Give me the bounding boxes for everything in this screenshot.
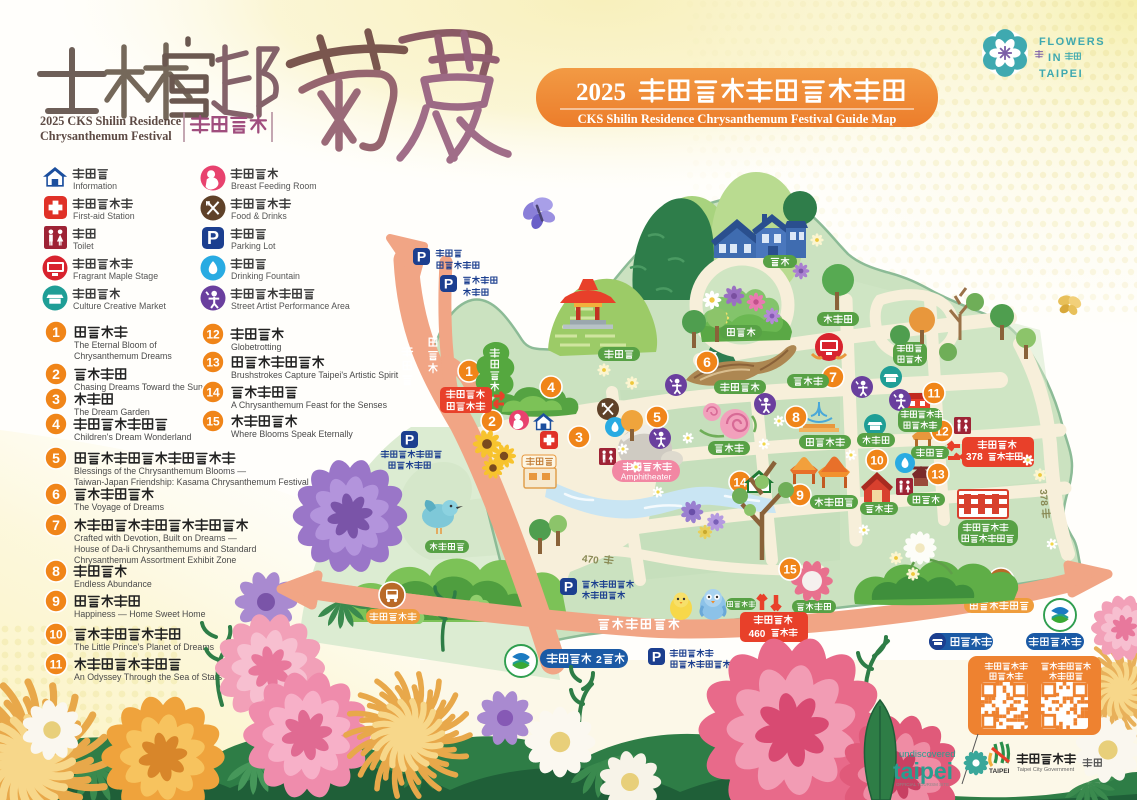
svg-text:4: 4 xyxy=(547,379,555,395)
svg-text:7: 7 xyxy=(829,369,837,385)
svg-text:The Dream Garden: The Dream Garden xyxy=(74,407,150,417)
svg-text:378: 378 xyxy=(1037,489,1049,507)
svg-text:TAIPEI: TAIPEI xyxy=(989,768,1010,775)
svg-text:Drinking Fountain: Drinking Fountain xyxy=(231,271,300,281)
svg-text:13: 13 xyxy=(206,355,220,369)
svg-text:9: 9 xyxy=(52,593,60,609)
svg-text:Crafted with Devotion, Built o: Crafted with Devotion, Built on Dreams — xyxy=(74,533,237,543)
svg-text:Taiwan-Japan Friendship: Kasam: Taiwan-Japan Friendship: Kasama Chrysant… xyxy=(74,477,309,487)
svg-text:2: 2 xyxy=(596,654,602,666)
svg-text:A Chrysanthemum Feast for the: A Chrysanthemum Feast for the Senses xyxy=(231,400,388,410)
svg-text:Taipei City Government: Taipei City Government xyxy=(1017,767,1075,773)
svg-text:The Voyage of Dreams: The Voyage of Dreams xyxy=(74,502,165,512)
svg-text:Chrysanthemum Dreams: Chrysanthemum Dreams xyxy=(74,351,172,361)
svg-text:2: 2 xyxy=(488,413,496,429)
svg-text:IN: IN xyxy=(1048,52,1062,64)
svg-text:8: 8 xyxy=(52,563,60,579)
svg-text:10: 10 xyxy=(49,627,63,641)
svg-text:1: 1 xyxy=(465,363,473,379)
svg-text:4: 4 xyxy=(52,416,60,432)
svg-text:P: P xyxy=(564,578,573,594)
svg-text:12: 12 xyxy=(206,327,220,341)
svg-text:Happiness — Home Sweet Home: Happiness — Home Sweet Home xyxy=(74,609,206,619)
svg-text:5: 5 xyxy=(653,409,661,425)
svg-text:P: P xyxy=(444,275,453,291)
svg-text:Where Blooms Speak Eternally: Where Blooms Speak Eternally xyxy=(231,429,353,439)
svg-text:P: P xyxy=(207,228,219,248)
svg-text:Culture Creative Market: Culture Creative Market xyxy=(73,301,166,311)
svg-text:Parking Lot: Parking Lot xyxy=(231,241,276,251)
svg-text:Fragrant Maple Stage: Fragrant Maple Stage xyxy=(73,271,158,281)
svg-text:Endless Abundance: Endless Abundance xyxy=(74,579,152,589)
svg-text:Chrysanthemum Assortment Exhib: Chrysanthemum Assortment Exhibit Zone xyxy=(74,555,236,565)
svg-text:Children's Dream Wonderland: Children's Dream Wonderland xyxy=(74,432,192,442)
svg-text:Food & Drinks: Food & Drinks xyxy=(231,211,287,221)
svg-text:The Little Prince's Planet of: The Little Prince's Planet of Dreams xyxy=(74,642,215,652)
svg-text:7: 7 xyxy=(52,517,60,533)
svg-text:6: 6 xyxy=(52,486,60,502)
svg-text:Brushstrokes Capture Taipei's: Brushstrokes Capture Taipei's Artistic S… xyxy=(231,370,399,380)
svg-text:3: 3 xyxy=(52,391,60,407)
svg-text:Toilet: Toilet xyxy=(73,241,94,251)
svg-text:Amphitheater: Amphitheater xyxy=(621,472,672,482)
svg-text:Breast Feeding Room: Breast Feeding Room xyxy=(231,181,317,191)
svg-text:TAIPEI: TAIPEI xyxy=(1039,68,1083,80)
svg-text:Blessings of the Chrysanthemum: Blessings of the Chrysanthemum Blooms — xyxy=(74,466,246,476)
svg-text:6: 6 xyxy=(703,354,711,370)
svg-text:CKS Shilin Residence Chrysanth: CKS Shilin Residence Chrysanthemum Festi… xyxy=(578,112,897,126)
svg-text:P: P xyxy=(405,431,414,447)
svg-text:An Odyssey Through the Sea of: An Odyssey Through the Sea of Stars xyxy=(74,672,223,682)
svg-text:2025 CKS Shilin Residence: 2025 CKS Shilin Residence xyxy=(40,114,182,128)
svg-text:OFFICIAL TOURISM SITE: OFFICIAL TOURISM SITE xyxy=(896,782,949,787)
svg-text:P: P xyxy=(652,648,661,664)
svg-text:Information: Information xyxy=(73,181,117,191)
svg-text:3: 3 xyxy=(575,429,583,445)
svg-text:Chasing Dreams Toward the Sun: Chasing Dreams Toward the Sun xyxy=(74,382,203,392)
svg-text:First-aid Station: First-aid Station xyxy=(73,211,135,221)
svg-text:14: 14 xyxy=(206,385,220,399)
svg-text:15: 15 xyxy=(206,414,220,428)
svg-text:13: 13 xyxy=(931,467,945,481)
svg-text:11: 11 xyxy=(928,386,941,400)
svg-text:The Eternal Bloom of: The Eternal Bloom of xyxy=(74,340,157,350)
svg-text:378: 378 xyxy=(966,452,983,463)
svg-text:1: 1 xyxy=(52,324,60,340)
svg-text:House of Da-li Chrysanthemums: House of Da-li Chrysanthemums and Standa… xyxy=(74,544,256,554)
svg-text:460: 460 xyxy=(749,629,766,640)
svg-text:FLOWERS: FLOWERS xyxy=(1039,36,1105,48)
svg-text:2025: 2025 xyxy=(576,79,626,106)
svg-text:taipei: taipei xyxy=(893,758,953,784)
svg-text:10: 10 xyxy=(870,453,884,467)
svg-text:9: 9 xyxy=(796,487,804,503)
svg-text:15: 15 xyxy=(783,562,797,576)
svg-text:P: P xyxy=(417,248,426,264)
svg-text:Globetrotting: Globetrotting xyxy=(231,342,281,352)
svg-text:11: 11 xyxy=(50,657,63,671)
svg-text:Chrysanthemum Festival: Chrysanthemum Festival xyxy=(40,129,172,143)
svg-text:5: 5 xyxy=(52,450,60,466)
svg-text:8: 8 xyxy=(792,409,800,425)
svg-text:Street Artist Performance Area: Street Artist Performance Area xyxy=(231,301,350,311)
svg-text:2: 2 xyxy=(52,366,60,382)
